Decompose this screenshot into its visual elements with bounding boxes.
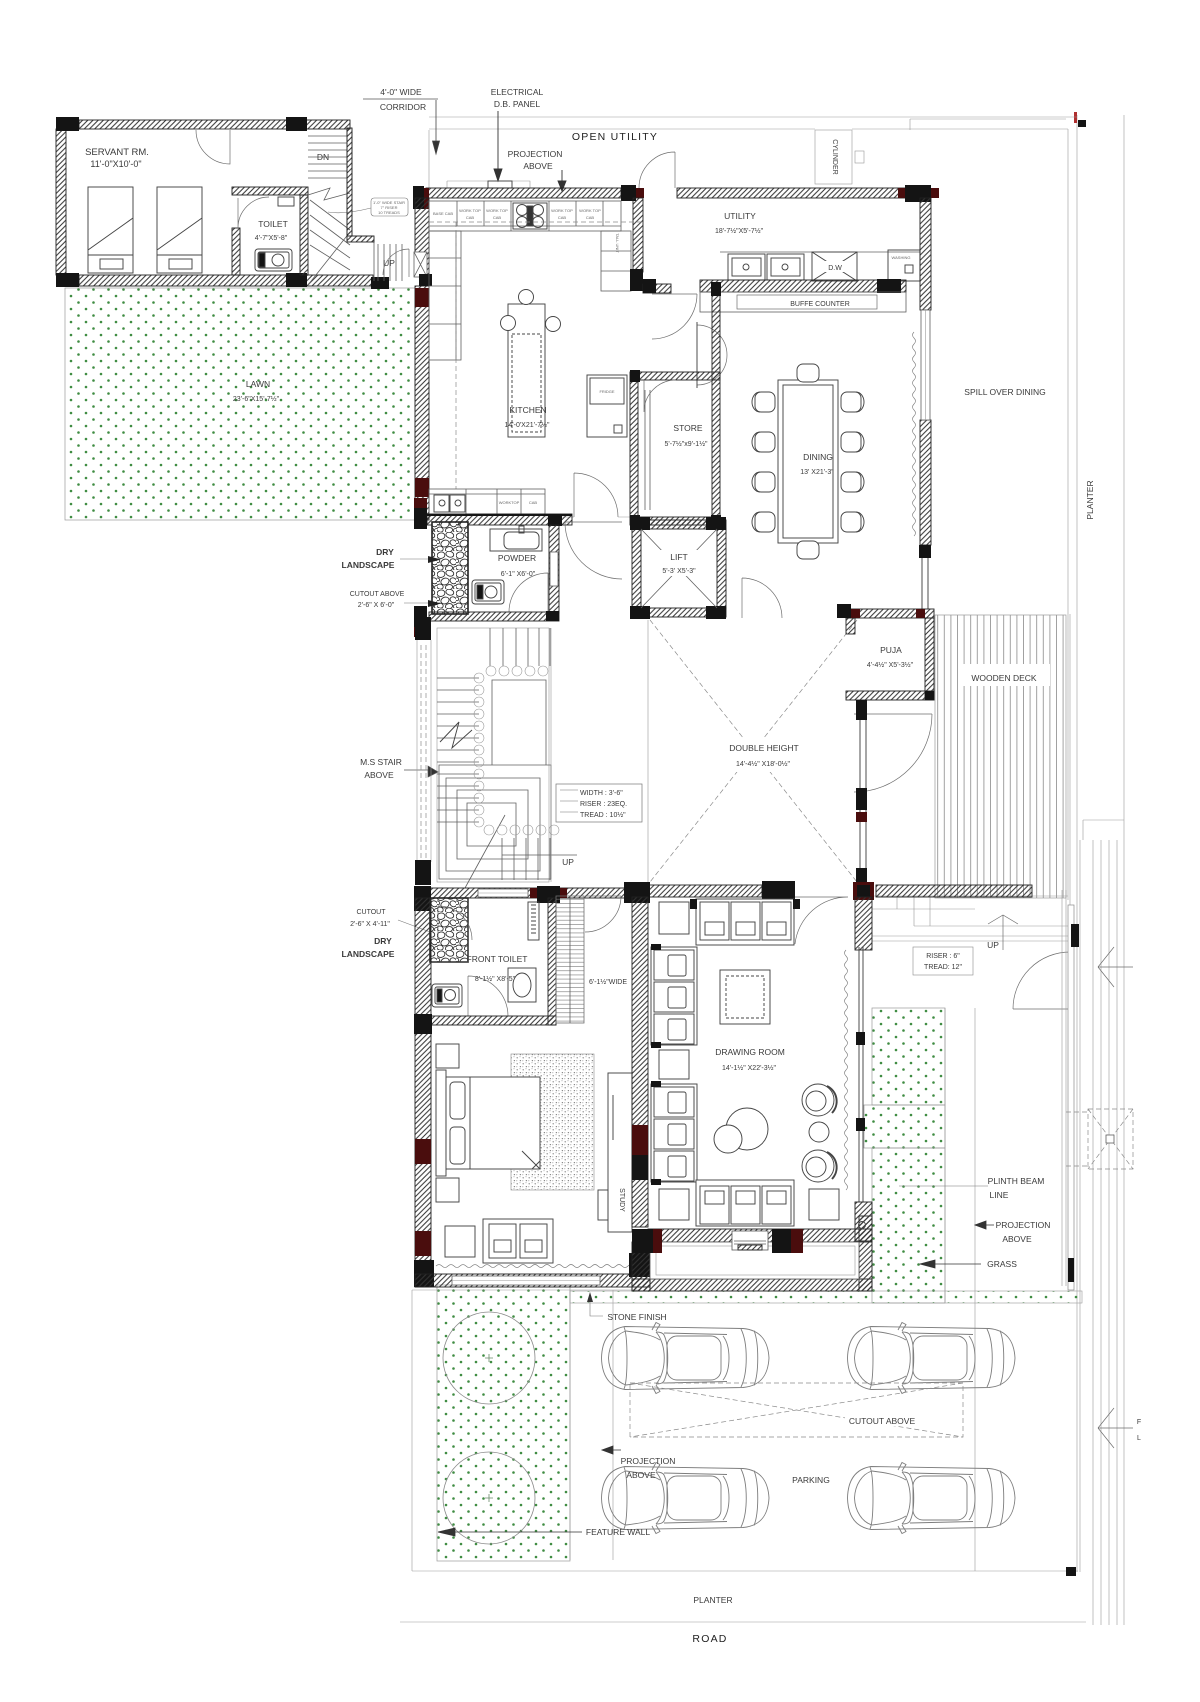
svg-text:WOODEN DECK: WOODEN DECK: [971, 673, 1037, 683]
svg-text:PLINTH BEAM: PLINTH BEAM: [988, 1176, 1045, 1186]
svg-text:ROAD: ROAD: [692, 1633, 727, 1645]
svg-text:14'-4½" X18'-0½": 14'-4½" X18'-0½": [736, 760, 790, 768]
svg-text:LANDSCAPE: LANDSCAPE: [342, 560, 395, 570]
svg-text:UP: UP: [562, 857, 574, 867]
svg-text:F: F: [1137, 1419, 1141, 1426]
svg-text:TOILET: TOILET: [258, 219, 288, 229]
svg-text:WIDTH : 3'-6": WIDTH : 3'-6": [580, 790, 623, 797]
svg-text:GRASS: GRASS: [987, 1259, 1017, 1269]
svg-text:2'-6" X 4'-11": 2'-6" X 4'-11": [350, 921, 390, 928]
svg-text:POWDER: POWDER: [498, 553, 536, 563]
svg-text:DRY: DRY: [374, 936, 392, 946]
svg-text:D.W: D.W: [828, 265, 842, 272]
svg-text:DRAWING ROOM: DRAWING ROOM: [715, 1047, 785, 1057]
svg-text:CUTOUT ABOVE: CUTOUT ABOVE: [849, 1416, 916, 1426]
svg-text:5'-3' X5'-3": 5'-3' X5'-3": [662, 568, 696, 575]
svg-text:14'-0'X21'-7½": 14'-0'X21'-7½": [504, 421, 550, 429]
svg-text:CAB: CAB: [558, 215, 567, 220]
svg-text:TREAD : 10½": TREAD : 10½": [580, 811, 626, 819]
svg-text:ABOVE: ABOVE: [523, 161, 553, 171]
svg-text:WORK TOP: WORK TOP: [486, 208, 508, 213]
svg-text:RISER : 23EQ.: RISER : 23EQ.: [580, 801, 627, 808]
svg-text:WORK TOP: WORK TOP: [459, 208, 481, 213]
svg-text:UP: UP: [987, 940, 999, 950]
svg-text:ABOVE: ABOVE: [626, 1470, 656, 1480]
svg-text:DN: DN: [317, 152, 329, 162]
svg-text:14'-1½" X22'-3½": 14'-1½" X22'-3½": [722, 1064, 776, 1072]
svg-text:M.S STAIR: M.S STAIR: [360, 757, 402, 767]
svg-text:FRIDGE: FRIDGE: [599, 389, 614, 394]
svg-text:WASHING: WASHING: [892, 255, 911, 260]
svg-text:5'-7½"x9'-1½": 5'-7½"x9'-1½": [664, 440, 708, 448]
svg-text:PARKING: PARKING: [792, 1475, 830, 1485]
svg-text:FEATURE WALL: FEATURE WALL: [586, 1527, 651, 1537]
svg-text:4'-0" WIDE: 4'-0" WIDE: [380, 87, 422, 97]
svg-text:ABOVE: ABOVE: [1002, 1234, 1032, 1244]
svg-text:18'-7½"X5'-7½": 18'-7½"X5'-7½": [715, 227, 764, 235]
svg-text:WORKTOP: WORKTOP: [499, 500, 520, 505]
svg-text:CAB: CAB: [466, 215, 475, 220]
svg-text:4'-4½" X5'-3½": 4'-4½" X5'-3½": [867, 661, 914, 669]
svg-text:SERVANT RM.: SERVANT RM.: [85, 147, 149, 158]
svg-text:WORK TOP: WORK TOP: [551, 208, 573, 213]
svg-text:8'-1½" X8'-5": 8'-1½" X8'-5": [475, 975, 516, 983]
svg-text:CAB: CAB: [493, 215, 502, 220]
svg-text:PROJECTION: PROJECTION: [621, 1456, 676, 1466]
svg-text:D.B. PANEL: D.B. PANEL: [494, 99, 540, 109]
svg-text:6'-1½"WIDE: 6'-1½"WIDE: [589, 978, 627, 986]
svg-text:DINING: DINING: [803, 452, 833, 462]
svg-text:STORE: STORE: [673, 423, 702, 433]
svg-text:WORK TOP: WORK TOP: [579, 208, 601, 213]
svg-text:CUTOUT ABOVE: CUTOUT ABOVE: [350, 591, 405, 598]
svg-text:STONE FINISH: STONE FINISH: [607, 1312, 666, 1322]
svg-text:LANDSCAPE: LANDSCAPE: [342, 949, 395, 959]
svg-text:10 TREADS: 10 TREADS: [378, 210, 400, 215]
svg-text:TALL UNIT: TALL UNIT: [615, 233, 620, 253]
svg-text:PLANTER: PLANTER: [1085, 480, 1095, 519]
svg-text:FRONT TOILET: FRONT TOILET: [467, 954, 528, 964]
svg-text:CUTOUT: CUTOUT: [356, 909, 386, 916]
svg-text:CAB: CAB: [529, 500, 538, 505]
svg-text:BUFFE COUNTER: BUFFE COUNTER: [790, 301, 850, 308]
svg-text:BASE CAB: BASE CAB: [433, 211, 453, 216]
svg-text:PUJA: PUJA: [880, 645, 902, 655]
svg-text:13' X21'-3": 13' X21'-3": [800, 469, 834, 476]
svg-text:ELECTRICAL: ELECTRICAL: [491, 87, 544, 97]
svg-text:LAWN: LAWN: [246, 379, 270, 389]
svg-text:LIFT: LIFT: [670, 552, 687, 562]
svg-text:SPILL OVER DINING: SPILL OVER DINING: [964, 387, 1045, 397]
svg-text:TREAD: 12": TREAD: 12": [924, 964, 962, 971]
svg-text:DRY: DRY: [376, 547, 394, 557]
svg-text:RISER : 6": RISER : 6": [926, 953, 960, 960]
svg-text:OPEN UTILITY: OPEN UTILITY: [572, 131, 658, 143]
svg-text:LINE: LINE: [990, 1190, 1009, 1200]
svg-text:4'-7"X5'-8": 4'-7"X5'-8": [255, 235, 288, 242]
svg-text:23'-6"X15'-7½": 23'-6"X15'-7½": [233, 395, 280, 403]
svg-text:11'-0"X10'-0": 11'-0"X10'-0": [90, 159, 141, 169]
svg-text:STUDY: STUDY: [618, 1188, 625, 1212]
svg-text:UTILITY: UTILITY: [724, 211, 756, 221]
svg-text:PROJECTION: PROJECTION: [996, 1220, 1051, 1230]
svg-text:ABOVE: ABOVE: [364, 770, 394, 780]
svg-text:DOUBLE HEIGHT: DOUBLE HEIGHT: [729, 743, 798, 753]
svg-text:CORRIDOR: CORRIDOR: [380, 102, 426, 112]
svg-text:CYLINDER: CYLINDER: [831, 139, 838, 174]
svg-text:L: L: [1137, 1435, 1141, 1442]
svg-text:2'-6" X 6'-0": 2'-6" X 6'-0": [358, 602, 395, 609]
svg-text:PLANTER: PLANTER: [693, 1595, 732, 1605]
svg-text:PROJECTION: PROJECTION: [508, 149, 563, 159]
svg-text:CAB: CAB: [586, 215, 595, 220]
svg-text:UP: UP: [383, 258, 395, 268]
